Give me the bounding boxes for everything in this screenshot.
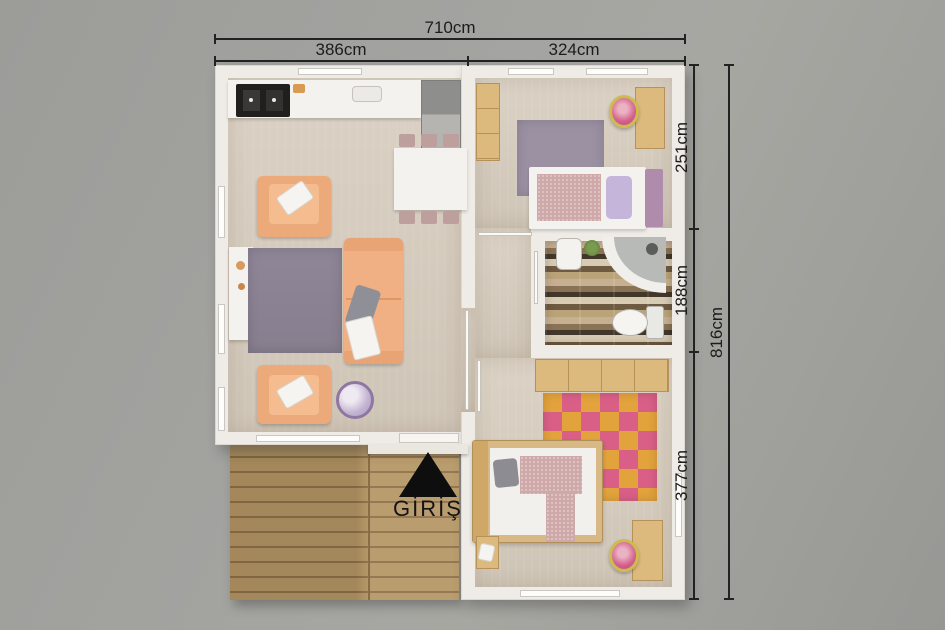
dining-chair bbox=[421, 211, 437, 224]
dim-line-sections-width bbox=[215, 60, 685, 62]
entrance-label: GİRİŞ bbox=[368, 496, 488, 522]
toilet-bowl bbox=[612, 309, 648, 336]
bathroom-sink bbox=[556, 238, 582, 270]
dim-label-height-middle: 188cm bbox=[672, 245, 692, 335]
bedroom2-blanket-bar bbox=[520, 456, 582, 494]
dim-tick bbox=[467, 56, 469, 66]
dim-label-height-top: 251cm bbox=[672, 102, 692, 192]
bedroom2-blanket-stem bbox=[546, 493, 575, 542]
dim-line-total-height bbox=[728, 65, 730, 599]
living-window-bottom bbox=[256, 435, 360, 442]
kitchen-window bbox=[298, 68, 362, 75]
dim-tick bbox=[689, 598, 699, 600]
sofa bbox=[344, 238, 403, 364]
bedroom1-headboard bbox=[645, 169, 663, 227]
bedroom2-wardrobe bbox=[535, 359, 669, 392]
bedroom2-headboard bbox=[473, 441, 488, 542]
living-window-left-2 bbox=[218, 304, 225, 354]
bedroom1-window-top-2 bbox=[586, 68, 648, 75]
dim-tick bbox=[684, 56, 686, 66]
bedroom1-door-leaf bbox=[478, 232, 532, 236]
floorplan-scene: GİRİŞ 710cm 386cm 324cm 251cm 188cm 377c… bbox=[0, 0, 945, 630]
dining-chair bbox=[399, 134, 415, 147]
console-decor-2 bbox=[238, 283, 245, 290]
dim-tick bbox=[684, 34, 686, 44]
dim-label-width-left: 386cm bbox=[291, 40, 391, 60]
dim-label-total-height: 816cm bbox=[707, 287, 727, 377]
living-window-left-1 bbox=[218, 186, 225, 238]
entrance-arrow-icon bbox=[399, 452, 457, 497]
dim-tick bbox=[689, 228, 699, 230]
dim-tick bbox=[214, 56, 216, 66]
bedroom2-window-bottom bbox=[520, 590, 620, 597]
dim-tick bbox=[214, 34, 216, 44]
bedroom1-window-top-1 bbox=[508, 68, 554, 75]
stove bbox=[236, 84, 290, 117]
burner-dot-1 bbox=[249, 98, 253, 102]
dim-line-sections-height bbox=[693, 65, 695, 599]
dining-chair bbox=[421, 134, 437, 147]
bedroom1-mattress bbox=[537, 174, 601, 221]
living-room-rug bbox=[248, 248, 342, 353]
dining-chair bbox=[443, 134, 459, 147]
dim-tick bbox=[724, 598, 734, 600]
dining-table bbox=[394, 148, 467, 210]
dim-tick bbox=[689, 64, 699, 66]
dim-tick bbox=[689, 351, 699, 353]
bathroom-door-leaf bbox=[534, 251, 538, 304]
shower-drain bbox=[646, 243, 658, 255]
bedroom2-pillow bbox=[493, 458, 520, 488]
bedroom2-bed bbox=[472, 440, 603, 543]
kitchen-sink bbox=[352, 86, 382, 102]
armchair-bottom bbox=[257, 365, 331, 424]
bedroom1-wardrobe bbox=[476, 83, 500, 161]
burner-dot-2 bbox=[272, 98, 276, 102]
toilet-tank bbox=[646, 306, 664, 339]
coffee-table bbox=[336, 381, 374, 419]
bedroom1-desk bbox=[635, 87, 665, 149]
bedroom2-door-leaf bbox=[477, 360, 481, 412]
bedroom1-chair bbox=[609, 95, 639, 128]
counter-item bbox=[293, 84, 305, 93]
dining-chair bbox=[399, 211, 415, 224]
shower-tray bbox=[614, 237, 666, 283]
living-window-left-3 bbox=[218, 387, 225, 431]
bedroom1-pillow bbox=[606, 176, 632, 219]
dim-label-total-width: 710cm bbox=[400, 18, 500, 38]
hallway-floor bbox=[475, 228, 531, 358]
dim-label-width-right: 324cm bbox=[524, 40, 624, 60]
dim-label-height-bottom: 377cm bbox=[672, 430, 692, 520]
console-decor-1 bbox=[236, 261, 245, 270]
entrance-door bbox=[399, 433, 459, 443]
dim-tick bbox=[724, 64, 734, 66]
sofa-armrest-top bbox=[344, 238, 403, 251]
armchair-top bbox=[257, 176, 331, 237]
hallway-door-leaf bbox=[465, 310, 469, 410]
plant bbox=[584, 240, 600, 256]
dining-chair bbox=[443, 211, 459, 224]
bedroom2-chair bbox=[609, 539, 639, 572]
